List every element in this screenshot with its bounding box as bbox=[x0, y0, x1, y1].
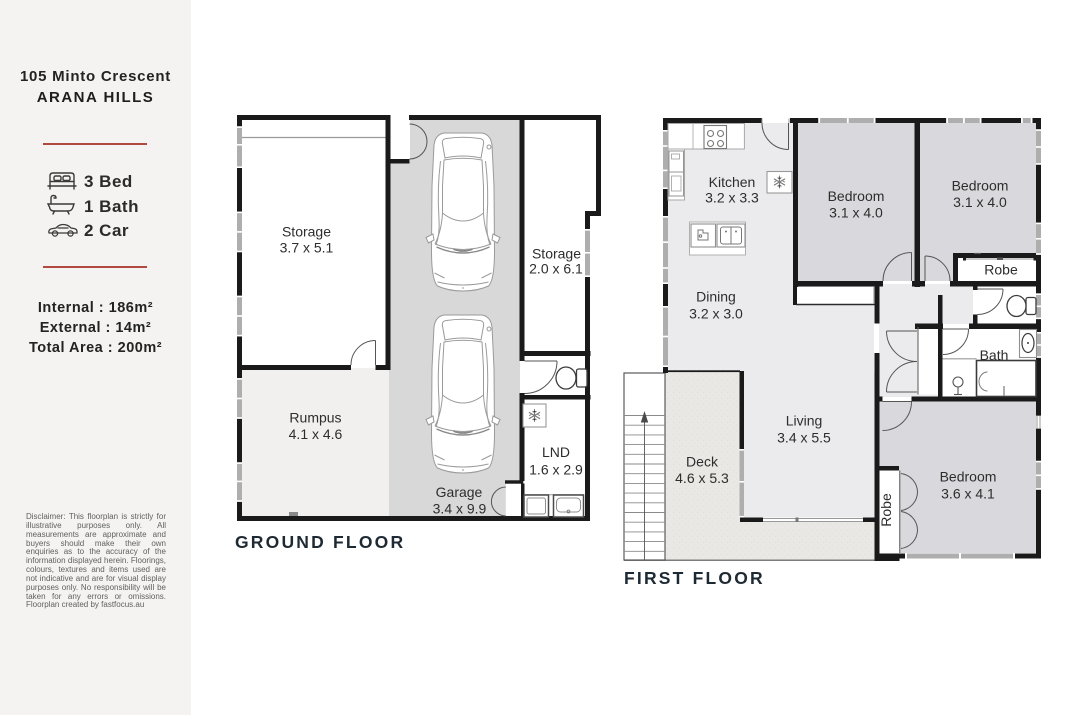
svg-text:Kitchen: Kitchen bbox=[709, 174, 756, 190]
svg-text:Storage: Storage bbox=[532, 246, 581, 262]
svg-text:Bedroom: Bedroom bbox=[940, 469, 997, 485]
svg-text:Deck: Deck bbox=[686, 454, 719, 470]
svg-text:Dining: Dining bbox=[696, 289, 736, 305]
svg-text:Living: Living bbox=[786, 413, 823, 429]
svg-text:Bedroom: Bedroom bbox=[828, 188, 885, 204]
svg-text:Garage: Garage bbox=[436, 484, 483, 500]
svg-text:3.2 x 3.0: 3.2 x 3.0 bbox=[689, 306, 743, 322]
svg-text:3.1 x 4.0: 3.1 x 4.0 bbox=[953, 194, 1007, 210]
svg-text:4.6 x 5.3: 4.6 x 5.3 bbox=[675, 470, 729, 486]
svg-text:1.6 x 2.9: 1.6 x 2.9 bbox=[529, 462, 583, 478]
svg-text:4.1 x 4.6: 4.1 x 4.6 bbox=[289, 426, 343, 442]
svg-text:3.2 x 3.3: 3.2 x 3.3 bbox=[705, 190, 759, 206]
svg-text:Robe: Robe bbox=[878, 493, 894, 527]
svg-text:3.4 x 9.9: 3.4 x 9.9 bbox=[433, 501, 487, 517]
svg-text:3.6 x 4.1: 3.6 x 4.1 bbox=[941, 486, 995, 502]
svg-text:LND: LND bbox=[542, 444, 570, 460]
svg-text:Bedroom: Bedroom bbox=[952, 178, 1009, 194]
svg-text:3.1 x 4.0: 3.1 x 4.0 bbox=[829, 205, 883, 221]
svg-text:3.7 x 5.1: 3.7 x 5.1 bbox=[280, 240, 334, 256]
svg-text:Rumpus: Rumpus bbox=[289, 410, 341, 426]
svg-text:3.4 x 5.5: 3.4 x 5.5 bbox=[777, 430, 831, 446]
svg-text:Storage: Storage bbox=[282, 224, 331, 240]
svg-text:Robe: Robe bbox=[984, 262, 1018, 278]
svg-text:2.0 x 6.1: 2.0 x 6.1 bbox=[529, 261, 583, 277]
svg-text:Bath: Bath bbox=[980, 347, 1009, 363]
